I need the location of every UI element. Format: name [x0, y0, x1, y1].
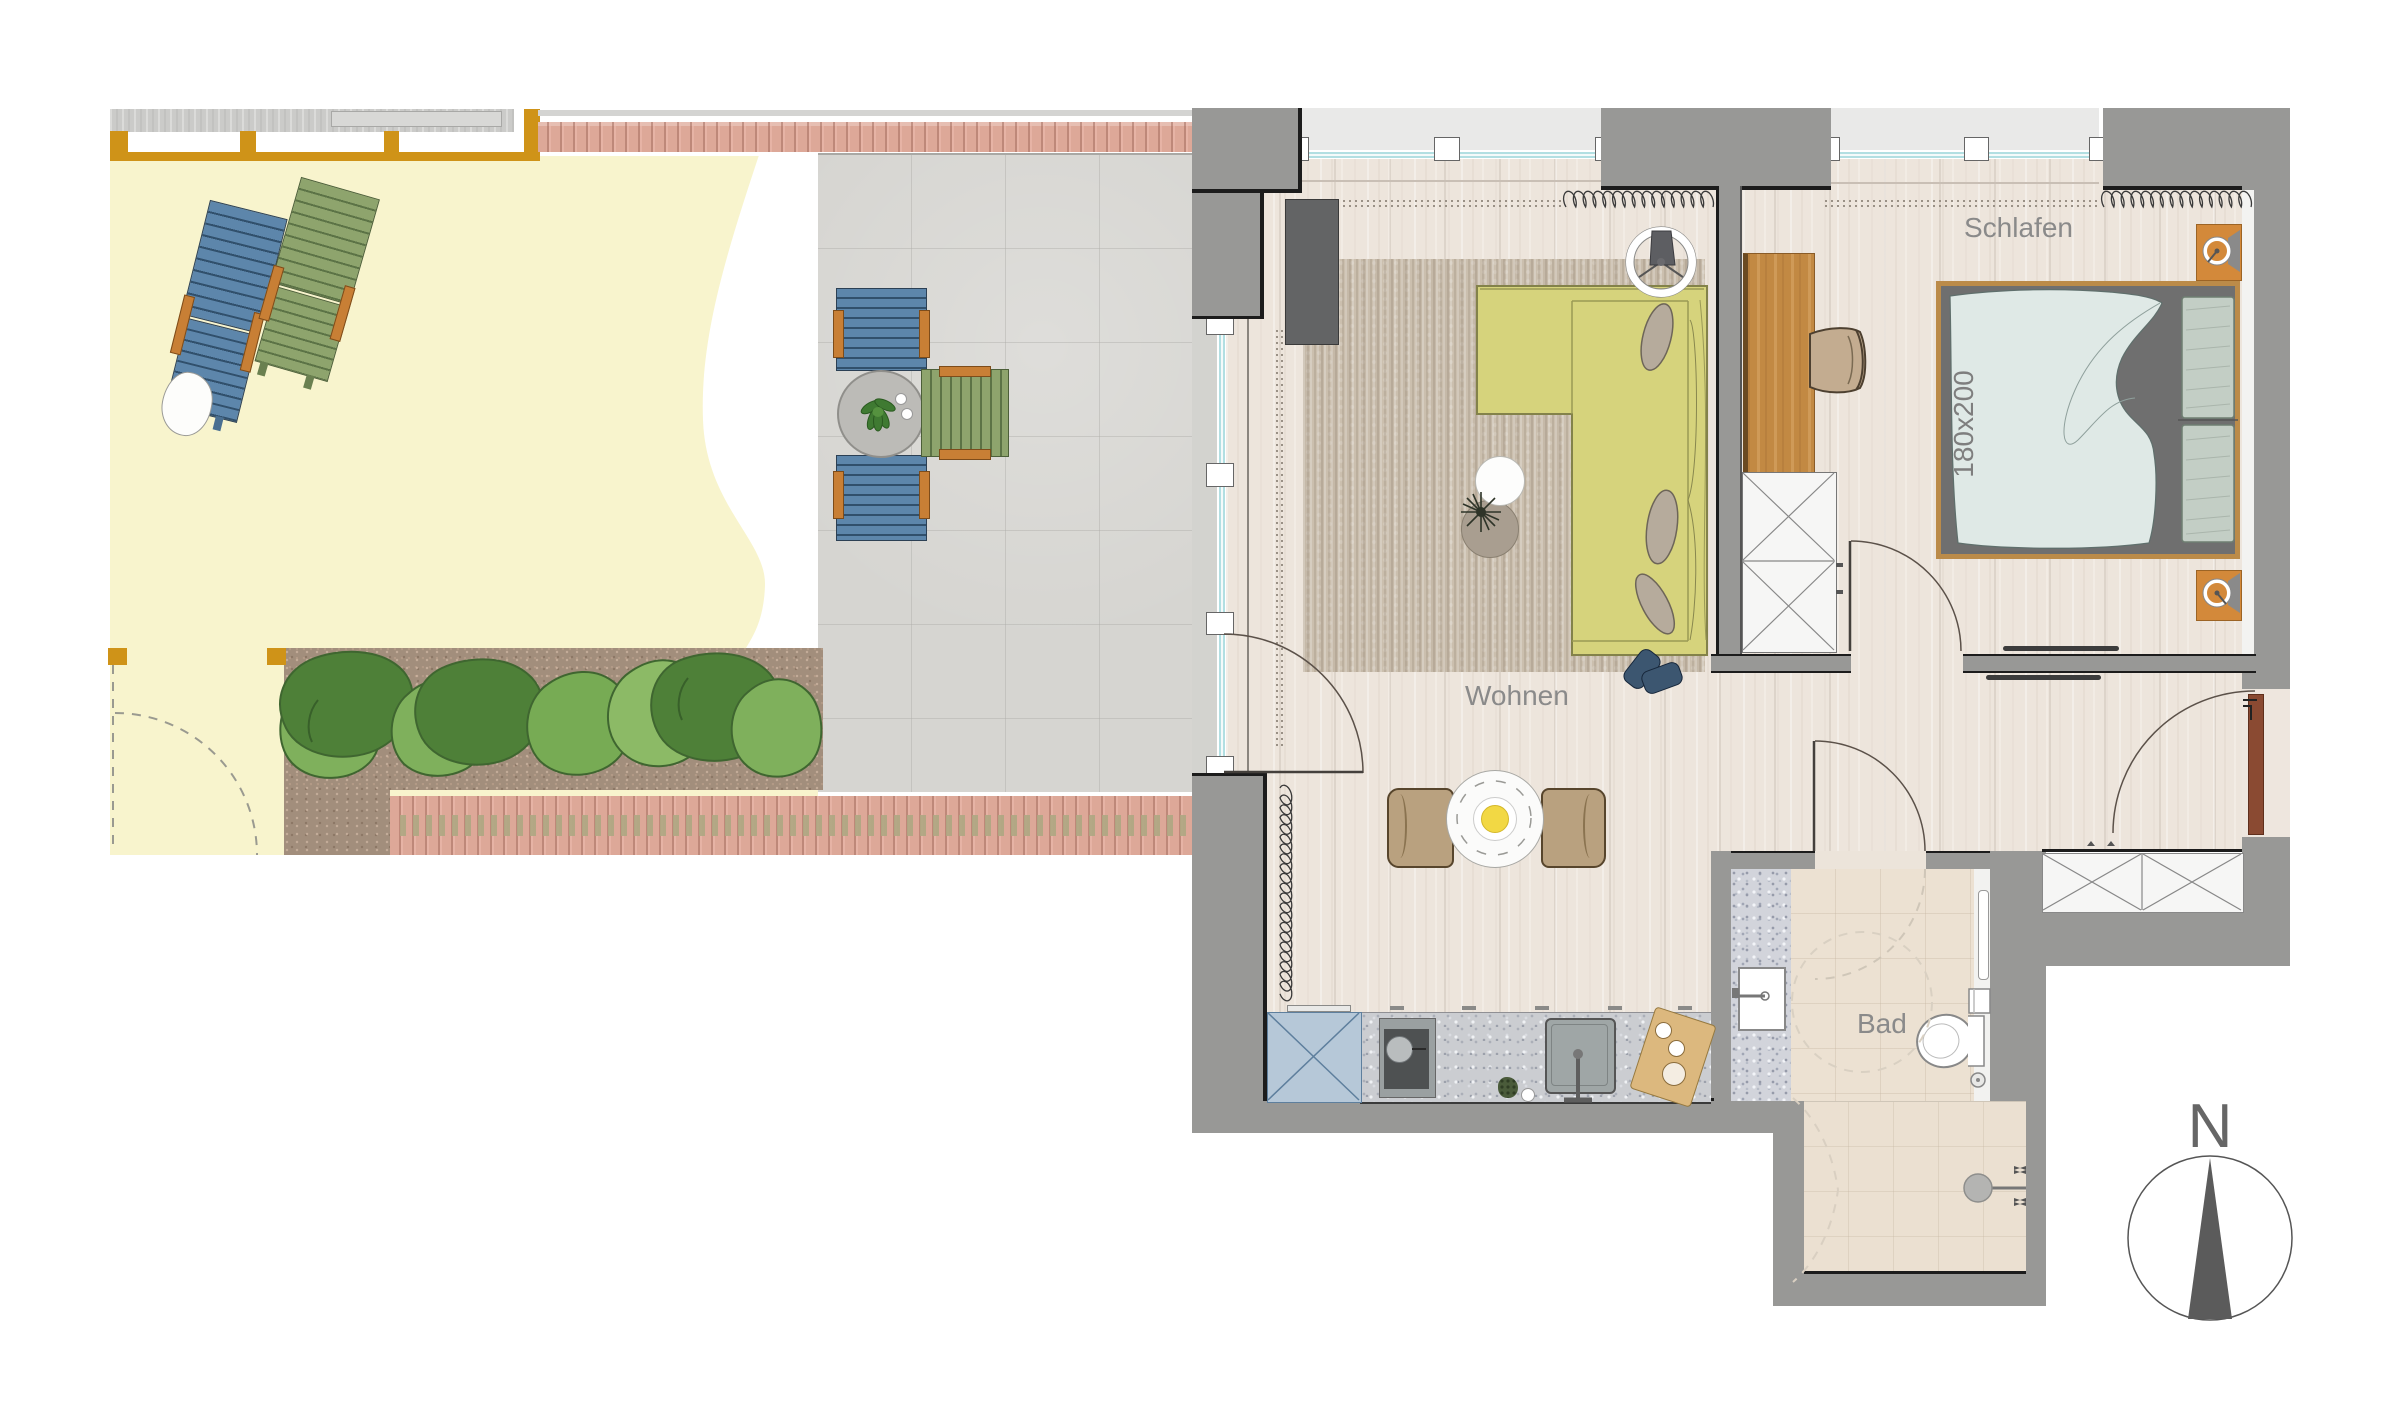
svg-text:N: N — [2188, 1092, 2233, 1161]
